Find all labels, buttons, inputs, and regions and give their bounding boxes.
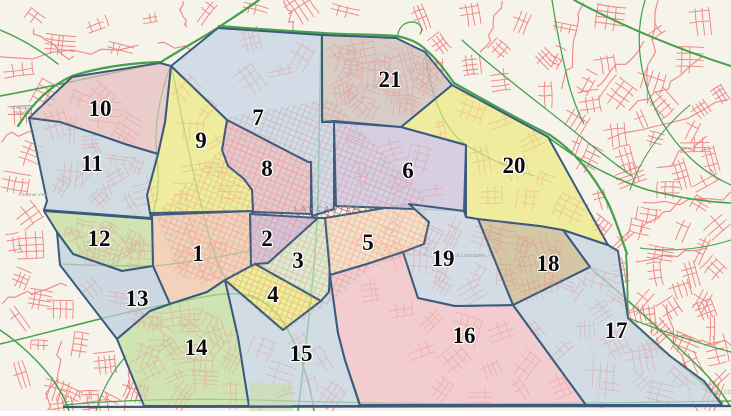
svg-text:12: 12 bbox=[88, 226, 111, 251]
svg-text:20: 20 bbox=[503, 153, 526, 178]
svg-text:11: 11 bbox=[81, 151, 103, 176]
svg-text:LANCASTER: LANCASTER bbox=[294, 204, 362, 213]
svg-text:1: 1 bbox=[192, 241, 204, 266]
svg-text:4: 4 bbox=[267, 282, 279, 307]
svg-text:3: 3 bbox=[292, 248, 304, 273]
svg-text:7: 7 bbox=[252, 105, 264, 130]
svg-text:Ridge: Ridge bbox=[14, 110, 26, 115]
svg-text:21: 21 bbox=[379, 67, 402, 92]
svg-text:19: 19 bbox=[432, 246, 455, 271]
svg-text:Chestnut View: Chestnut View bbox=[19, 192, 49, 197]
svg-text:5: 5 bbox=[362, 230, 374, 255]
svg-text:18: 18 bbox=[537, 251, 560, 276]
svg-text:2: 2 bbox=[261, 226, 273, 251]
svg-text:6: 6 bbox=[402, 158, 414, 183]
svg-text:17: 17 bbox=[605, 318, 628, 343]
svg-text:10: 10 bbox=[89, 96, 112, 121]
svg-text:14: 14 bbox=[185, 335, 209, 360]
svg-text:16: 16 bbox=[453, 323, 476, 348]
svg-text:15: 15 bbox=[290, 341, 313, 366]
svg-text:8: 8 bbox=[261, 156, 273, 181]
svg-text:9: 9 bbox=[195, 128, 207, 153]
svg-text:Data CC: Data CC bbox=[712, 390, 731, 396]
svg-text:13: 13 bbox=[126, 286, 149, 311]
